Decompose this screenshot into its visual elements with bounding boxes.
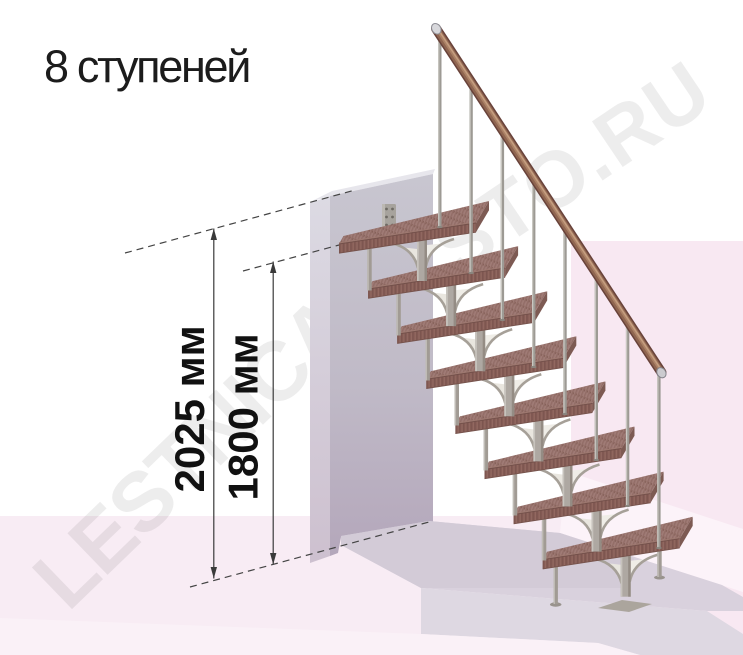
svg-text:2025 мм: 2025 мм: [166, 325, 213, 492]
svg-text:1800 мм: 1800 мм: [220, 333, 267, 500]
svg-text:8 ступеней: 8 ступеней: [44, 41, 249, 92]
